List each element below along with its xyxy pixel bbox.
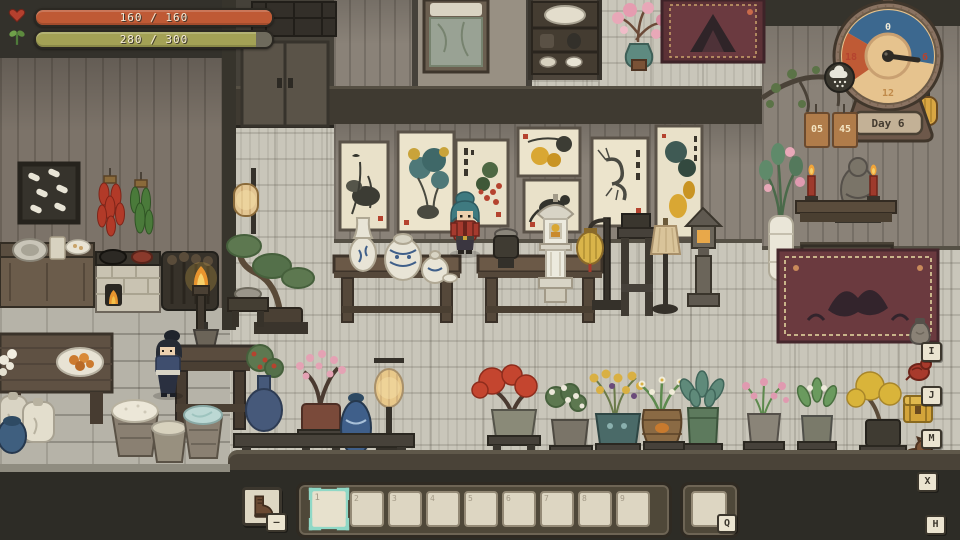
- hotkey-journal[interactable]: J: [921, 386, 942, 406]
- basket-cloth[interactable]: [184, 406, 222, 458]
- dial-number-bottom: 12: [882, 88, 894, 99]
- chili-bundle: [98, 168, 125, 236]
- time-tag-hour: 05: [804, 112, 830, 148]
- blossom-vase-top[interactable]: [612, 2, 668, 70]
- floor-lamp[interactable]: [651, 218, 680, 314]
- boot-key-hint: –: [266, 513, 287, 532]
- selection-corner: [309, 488, 321, 500]
- dial-number-left: 18: [845, 52, 857, 63]
- time-tag-minute: 45: [832, 112, 858, 148]
- food-plate[interactable]: [57, 348, 103, 376]
- hotkey-chest[interactable]: M: [921, 429, 942, 449]
- selection-corner: [309, 518, 321, 530]
- fish-picture-frame: [20, 164, 78, 222]
- candle: [805, 165, 818, 202]
- display-stand[interactable]: [618, 214, 656, 316]
- hotkey-pet[interactable]: X: [917, 472, 938, 492]
- red-bird-icon[interactable]: [906, 359, 931, 380]
- kitchen-floor-edge: [0, 464, 230, 472]
- painting-lotus: [340, 142, 388, 230]
- bowl-stand: [228, 288, 268, 327]
- herb-bundle: [131, 172, 154, 234]
- pagoda-lamp[interactable]: [538, 194, 573, 302]
- hotbar-slot-1[interactable]: 1: [310, 489, 348, 529]
- hotbar-slot-7[interactable]: 7: [540, 491, 574, 527]
- stove[interactable]: [96, 250, 160, 312]
- heart-icon: [8, 7, 26, 23]
- health-value: 160 / 160: [36, 10, 272, 25]
- hotbar-slot-8[interactable]: 8: [578, 491, 612, 527]
- dish-shelf[interactable]: [532, 2, 598, 74]
- snow-cloud-icon: [824, 62, 855, 93]
- hotkey-handbook[interactable]: H: [925, 515, 946, 535]
- quick-slot-key: Q: [717, 514, 737, 533]
- game-screen: 160 / 160 280 / 300 0 6 12 18: [0, 0, 960, 540]
- hotbar-slot-9[interactable]: 9: [616, 491, 650, 527]
- painting-gourds: [518, 128, 580, 176]
- hotbar: 1 2 3 4 5 6 7 8 9: [296, 482, 672, 538]
- red-bonsai[interactable]: [472, 365, 540, 459]
- white-green-plant[interactable]: [795, 378, 839, 461]
- basket-medium[interactable]: [152, 421, 186, 462]
- health-bar: 160 / 160: [34, 8, 274, 27]
- dial-number-top: 0: [885, 22, 891, 33]
- hotbar-slot-3[interactable]: 3: [388, 491, 422, 527]
- dial-number-right: 6: [922, 52, 928, 63]
- wall-lantern: [234, 168, 258, 234]
- hotbar-slot-5[interactable]: 5: [464, 491, 498, 527]
- bed[interactable]: [424, 0, 488, 72]
- status-bars: 160 / 160 280 / 300: [6, 6, 276, 50]
- hotbar-slot-4[interactable]: 4: [426, 491, 460, 527]
- hotbar-slot-6[interactable]: 6: [502, 491, 536, 527]
- sprout-icon: [9, 28, 25, 46]
- energy-bar: 280 / 300: [34, 30, 274, 49]
- hotkey-inventory[interactable]: I: [921, 342, 942, 362]
- red-tapestry: [662, 0, 764, 62]
- selection-corner: [337, 488, 349, 500]
- berry-plant[interactable]: [246, 345, 283, 431]
- painting-shrimp: [592, 138, 648, 226]
- day-label: Day 6: [871, 117, 904, 130]
- hotbar-slot-2[interactable]: 2: [350, 491, 384, 527]
- stone-lantern[interactable]: [686, 208, 721, 306]
- energy-value: 280 / 300: [36, 32, 272, 47]
- painting-wisteria: [398, 132, 454, 232]
- kitchen-counter[interactable]: [0, 237, 94, 307]
- selection-corner: [337, 518, 349, 530]
- porcelain-jar[interactable]: [385, 234, 421, 280]
- bonsai-pine[interactable]: [227, 235, 314, 334]
